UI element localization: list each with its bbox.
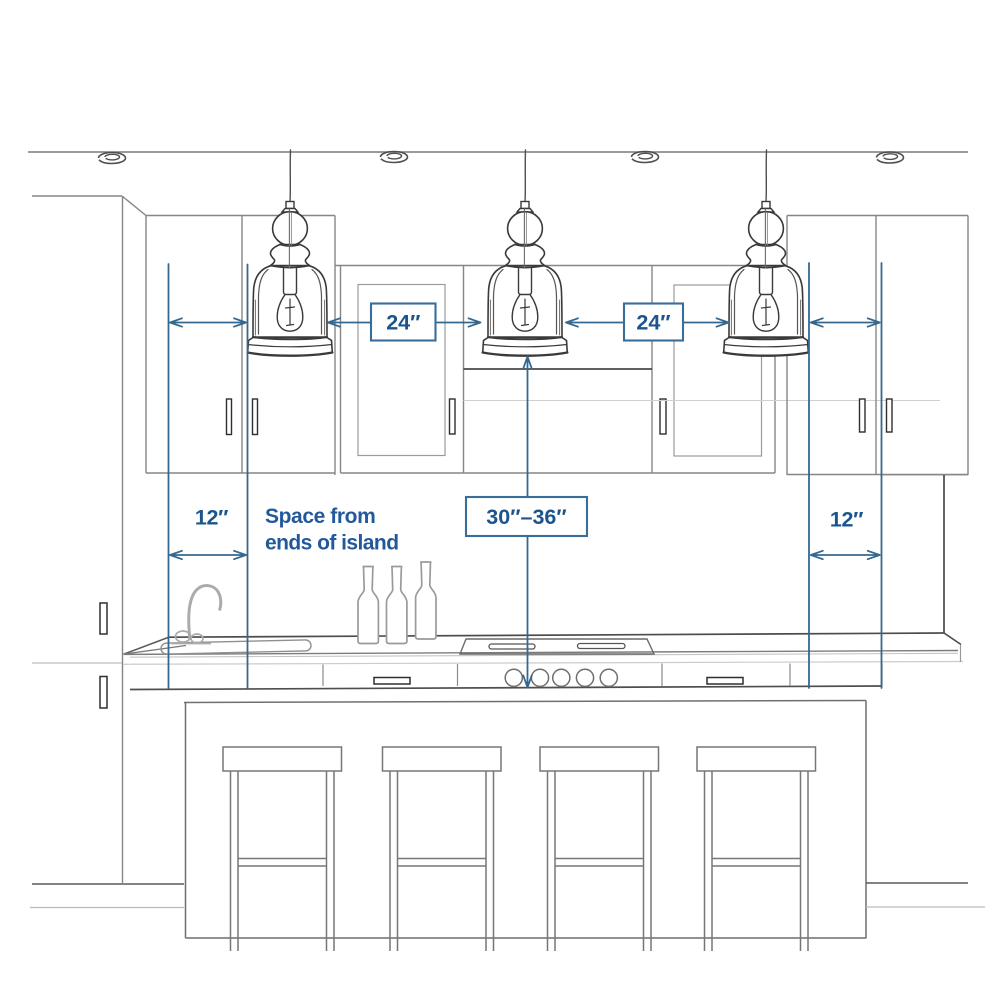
svg-text:30″–36″: 30″–36″ [486, 505, 566, 529]
svg-text:12″: 12″ [830, 508, 863, 532]
svg-text:ends of island: ends of island [265, 532, 399, 555]
svg-text:24″: 24″ [636, 311, 670, 335]
svg-text:12″: 12″ [195, 506, 228, 530]
svg-text:24″: 24″ [386, 311, 420, 335]
svg-text:Space from: Space from [265, 505, 375, 528]
